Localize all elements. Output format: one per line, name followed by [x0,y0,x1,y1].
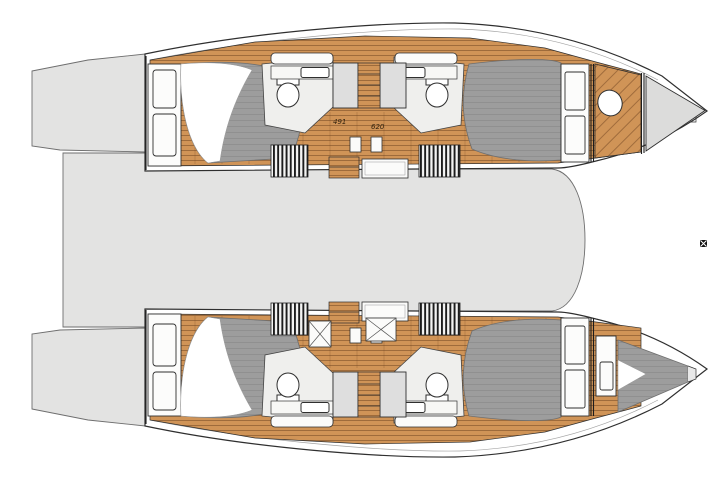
locker [371,137,382,152]
pillow [153,70,176,108]
locker [350,328,361,343]
companionway-steps [358,63,380,108]
vent-grate [271,303,308,335]
shower-stall [333,372,358,417]
wardrobe-door [565,370,585,408]
toilet-icon [277,373,299,397]
port-hull: 491 620 [145,23,707,178]
hull-window [271,416,333,427]
port-swim-platform [32,54,145,152]
starboard-swim-platform [32,328,145,426]
cockpit-bridge-deck [63,153,585,327]
hull-window [395,416,457,427]
catamaran-deck-plan: 491 620 [0,0,720,480]
port-forward-cabin [463,59,593,162]
locker [350,137,361,152]
toilet-icon [426,373,448,397]
deck-plan-canvas: 491 620 [0,0,720,480]
shower-stall [380,372,406,417]
wardrobe-door [565,326,585,364]
skylight-hatch [309,321,331,347]
companionway-steps [358,372,380,417]
sink-icon [301,403,329,413]
entry-steps [329,302,359,323]
wardrobe-door [565,116,585,154]
vent-grate [271,145,308,177]
pillow [153,114,176,156]
toilet-icon [277,83,299,107]
hull-window [271,53,333,64]
sink-icon [301,68,329,78]
bow-fitting [688,366,696,382]
hull-window [395,53,457,64]
pillow [153,372,176,410]
port-bow-head [594,64,644,158]
vent-grate [419,303,460,335]
skylight-hatch [366,318,396,341]
bow-cabinet-door [600,362,613,390]
starboard-hull [145,302,707,457]
wardrobe-door [565,72,585,110]
double-bed [463,319,561,421]
toilet-icon [426,83,448,107]
artifact-marker-icon [700,240,707,247]
starboard-forward-cabin [463,318,593,421]
dimension-label-right: 620 [371,123,385,131]
vent-grate [419,145,460,177]
shower-stall [380,63,406,108]
shower-stall [333,63,358,108]
dimension-label-left: 491 [333,118,346,126]
double-bed [463,59,561,161]
entry-steps [329,157,359,178]
pillow [153,324,176,366]
